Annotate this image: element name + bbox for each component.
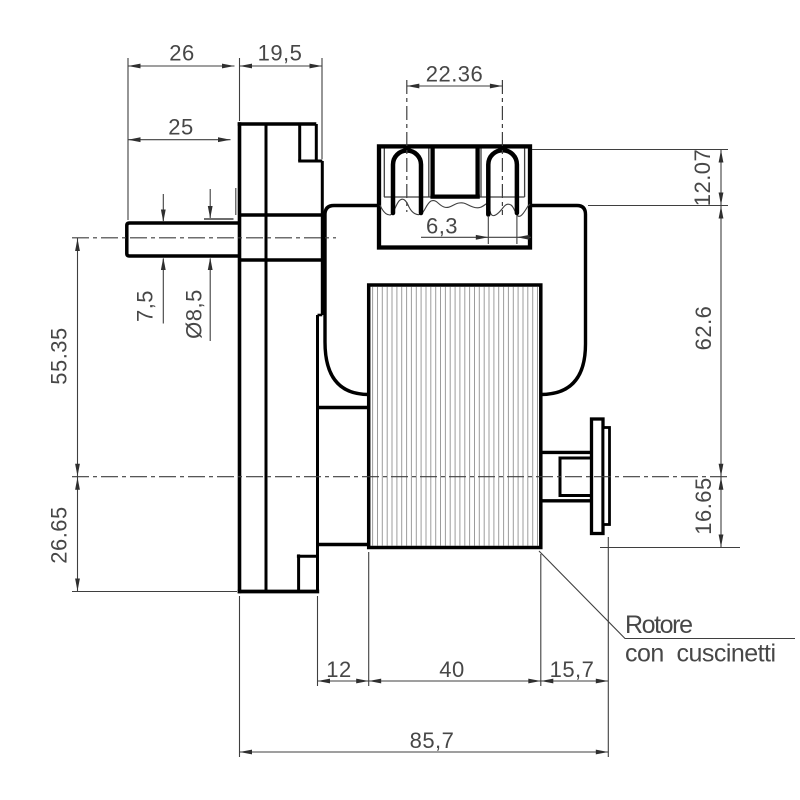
- svg-text:25: 25: [168, 115, 193, 140]
- svg-text:con cuscinetti: con cuscinetti: [625, 640, 776, 668]
- svg-text:19,5: 19,5: [258, 41, 303, 66]
- svg-text:6,3: 6,3: [426, 214, 458, 239]
- svg-text:85,7: 85,7: [410, 728, 455, 753]
- svg-text:7,5: 7,5: [133, 290, 158, 322]
- svg-text:40: 40: [439, 657, 464, 682]
- svg-text:16.65: 16.65: [691, 477, 716, 535]
- svg-text:15,7: 15,7: [550, 657, 595, 682]
- svg-text:55.35: 55.35: [47, 327, 72, 385]
- svg-text:12: 12: [326, 657, 351, 682]
- svg-text:12.07: 12.07: [690, 149, 715, 207]
- svg-text:26.65: 26.65: [47, 506, 72, 564]
- svg-text:22.36: 22.36: [426, 62, 484, 87]
- svg-text:Rotore: Rotore: [625, 611, 693, 639]
- svg-text:62.6: 62.6: [691, 306, 716, 351]
- svg-text:Ø8,5: Ø8,5: [182, 289, 207, 339]
- svg-text:26: 26: [169, 41, 194, 66]
